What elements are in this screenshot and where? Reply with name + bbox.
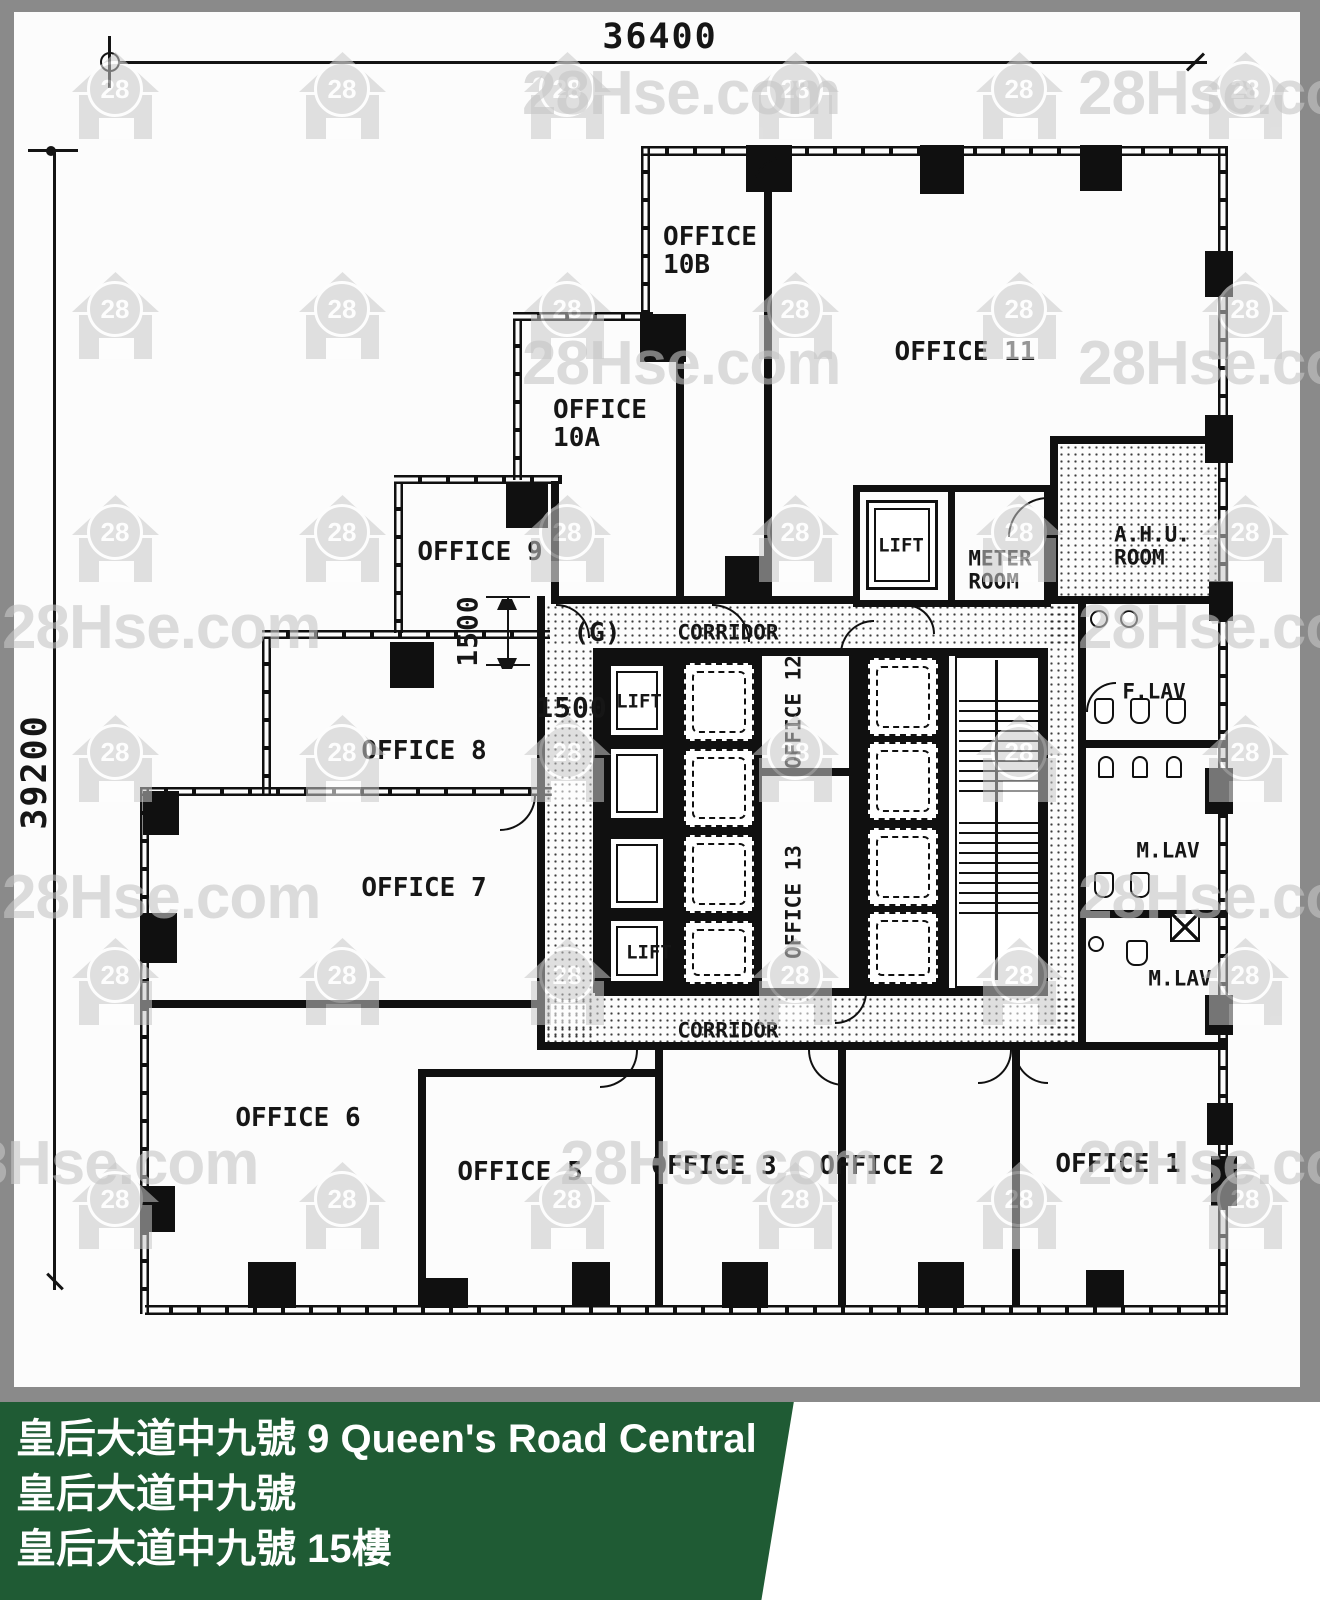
exterior-wall — [513, 320, 522, 480]
duct-box — [1170, 912, 1200, 942]
interior-wall — [1050, 436, 1226, 444]
floor-plan-screenshot: 36400 39200 1500 1500 OFFICE 1 OFFICE 2 … — [0, 0, 1320, 1600]
dimension-label-left: 39200 — [17, 714, 55, 829]
floor-plan: 36400 39200 1500 1500 OFFICE 1 OFFICE 2 … — [14, 12, 1300, 1387]
column — [920, 145, 964, 194]
column — [506, 483, 548, 528]
corridor-stipple — [1058, 444, 1218, 596]
room-label-office-9: OFFICE 9 — [417, 538, 542, 566]
door-arc — [808, 1050, 844, 1086]
corridor-stipple — [545, 996, 1078, 1042]
column — [1205, 768, 1233, 814]
column — [572, 1262, 610, 1306]
room-label-meter-room: METER ROOM — [968, 547, 1031, 592]
room-label-lift-top: LIFT — [878, 536, 924, 557]
column — [1086, 1270, 1124, 1306]
toilet-fixture — [1130, 872, 1150, 898]
column — [640, 314, 686, 362]
room-label-office-7: OFFICE 7 — [361, 874, 486, 902]
bottom-banner: 皇后大道中九號 9 Queen's Road Central 皇后大道中九號 皇… — [0, 1402, 1320, 1600]
label-corridor-top: CORRIDOR — [677, 622, 778, 645]
room-label-office-5: OFFICE 5 — [457, 1158, 582, 1186]
interior-wall — [140, 1000, 545, 1008]
room-label-office-6: OFFICE 6 — [235, 1104, 360, 1132]
column — [143, 791, 179, 835]
banner-line-2: 皇后大道中九號 — [16, 1467, 810, 1522]
interior-wall — [1012, 1050, 1020, 1305]
room-label-office-10a: OFFICE 10A — [553, 396, 647, 452]
interior-wall — [1050, 596, 1226, 604]
toilet-fixture — [1126, 940, 1148, 966]
interior-wall — [551, 481, 559, 602]
column — [1207, 1103, 1233, 1145]
interior-wall — [1086, 910, 1226, 918]
room-label-office-1: OFFICE 1 — [1055, 1150, 1180, 1178]
dimension-label-1500-office9: 1500 — [453, 595, 483, 666]
dimension-label-1500-lobby: 1500 — [536, 693, 607, 723]
lift-shaft-dashed — [684, 921, 754, 984]
interior-wall — [764, 146, 772, 604]
basin-fixture — [1090, 610, 1108, 628]
interior-wall — [1050, 436, 1058, 604]
lift-shaft-dashed — [684, 663, 754, 741]
exterior-wall — [140, 787, 149, 1314]
interior-wall — [1086, 740, 1226, 748]
interior-wall — [537, 596, 545, 1050]
room-label-office-11: OFFICE 11 — [895, 338, 1036, 366]
stair-treads — [959, 700, 1038, 792]
dimension-tick — [46, 146, 56, 156]
column — [1211, 1156, 1237, 1206]
room-label-lift-lower: LIFT — [626, 943, 672, 964]
basin-fixture — [1120, 610, 1138, 628]
column — [390, 642, 434, 688]
room-label-office-10b: OFFICE 10B — [663, 223, 757, 279]
room-label-m-lav-1: M.LAV — [1136, 840, 1199, 863]
dimension-tick — [108, 36, 111, 88]
lift-shaft-dashed — [684, 749, 754, 827]
corridor-stipple — [1048, 604, 1078, 1042]
interior-wall — [1078, 604, 1086, 1050]
urinal-fixture — [1098, 756, 1114, 778]
room-label-office-13: OFFICE 13 — [783, 845, 806, 959]
exterior-wall — [262, 638, 271, 794]
column — [725, 556, 767, 600]
room-label-m-lav-2: M.LAV — [1148, 968, 1211, 991]
banner-line-3: 皇后大道中九號 15樓 — [16, 1522, 810, 1577]
lift-shaft-dashed — [684, 835, 754, 913]
column — [141, 913, 177, 963]
stair-divider — [995, 660, 998, 980]
room-label-office-8: OFFICE 8 — [361, 737, 486, 765]
stair-treads — [959, 822, 1038, 922]
exterior-wall — [513, 312, 653, 321]
dimension-line-top — [118, 61, 1207, 64]
column — [722, 1262, 768, 1308]
exterior-wall — [394, 483, 403, 633]
address-banner: 皇后大道中九號 9 Queen's Road Central 皇后大道中九號 皇… — [0, 1402, 810, 1600]
toilet-fixture — [1094, 872, 1114, 898]
column — [1205, 415, 1233, 463]
room-label-lift-upper: LIFT — [616, 692, 662, 713]
column — [248, 1262, 296, 1308]
room-label-office-12: OFFICE 12 — [783, 655, 806, 769]
interior-wall — [757, 768, 855, 776]
basin-fixture — [1088, 936, 1104, 952]
interior-wall — [551, 596, 862, 604]
column — [1080, 145, 1122, 191]
door-arc — [978, 1050, 1012, 1084]
exterior-wall — [145, 1305, 1227, 1315]
exterior-wall — [140, 787, 552, 796]
lift-shaft-dashed — [868, 658, 938, 736]
interior-wall — [418, 1069, 426, 1305]
lift-shaft-dashed — [868, 742, 938, 820]
dimension-arrow-down — [497, 658, 517, 680]
interior-wall — [1008, 1042, 1226, 1050]
interior-wall — [948, 490, 955, 602]
dimension-arrow-up — [497, 588, 517, 610]
column — [424, 1278, 468, 1308]
door-arc — [600, 1050, 638, 1088]
column — [918, 1262, 964, 1308]
column — [1209, 581, 1233, 621]
exterior-wall — [641, 146, 650, 322]
column — [141, 1186, 175, 1232]
label-corridor-bottom: CORRIDOR — [677, 1020, 778, 1043]
dimension-label-top: 36400 — [602, 19, 717, 57]
lift-cell — [608, 746, 666, 821]
interior-wall — [1040, 648, 1048, 996]
lift-shaft-dashed — [868, 828, 938, 906]
frame-bottom — [0, 1387, 1320, 1402]
room-label-ahu-room: A.H.U. ROOM — [1114, 523, 1190, 568]
door-arc — [500, 795, 536, 831]
room-label-f-lav: F.LAV — [1122, 681, 1185, 704]
interior-wall — [849, 648, 857, 996]
label-g: (G) — [574, 619, 621, 647]
column — [1205, 995, 1233, 1035]
toilet-fixture — [1094, 698, 1114, 724]
column — [1205, 251, 1233, 297]
room-label-office-2: OFFICE 2 — [819, 1152, 944, 1180]
corridor-stipple — [545, 604, 1078, 648]
banner-line-1: 皇后大道中九號 9 Queen's Road Central — [16, 1412, 810, 1467]
urinal-fixture — [1166, 756, 1182, 778]
interior-wall — [545, 1042, 1086, 1050]
urinal-fixture — [1132, 756, 1148, 778]
lift-cell — [608, 836, 666, 911]
room-label-office-3: OFFICE 3 — [651, 1152, 776, 1180]
lift-shaft-dashed — [868, 912, 938, 984]
